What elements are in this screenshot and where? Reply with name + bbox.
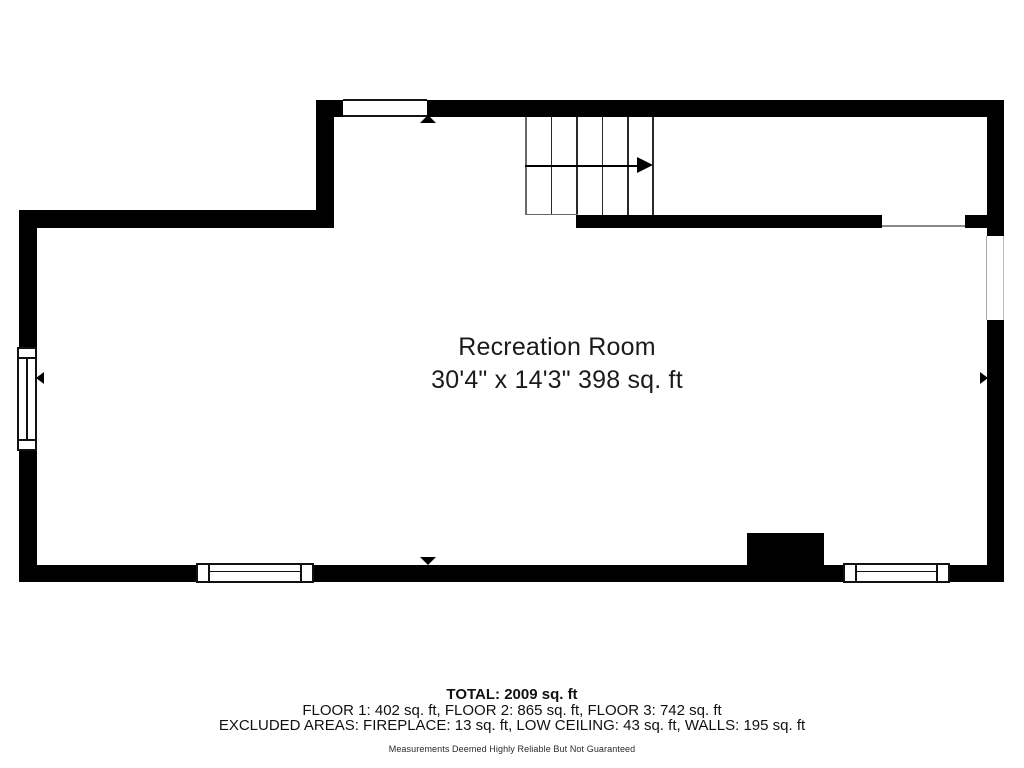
stair-direction-arrow bbox=[525, 165, 641, 167]
down-triangle-icon bbox=[420, 557, 436, 565]
fireplace bbox=[747, 533, 824, 566]
window-frame-line bbox=[936, 565, 938, 581]
wall-right-lower bbox=[987, 320, 1004, 582]
window-frame-line bbox=[855, 565, 857, 581]
excluded-areas: EXCLUDED AREAS: FIREPLACE: 13 sq. ft, LO… bbox=[0, 718, 1024, 734]
wall-left-upper bbox=[19, 210, 37, 348]
window-glass-line bbox=[210, 571, 300, 573]
window-left-wall bbox=[17, 347, 37, 451]
opening-top-wall bbox=[343, 99, 427, 117]
staircase bbox=[525, 117, 654, 215]
wall-below-stairs bbox=[576, 215, 882, 228]
opening-stair-landing bbox=[882, 225, 965, 227]
left-triangle-icon bbox=[36, 372, 44, 384]
room-name: Recreation Room bbox=[212, 331, 902, 364]
window-frame-line bbox=[300, 565, 302, 581]
right-arrow-icon bbox=[637, 157, 653, 173]
window-glass-line bbox=[26, 359, 28, 439]
stair-bottom-edge bbox=[525, 214, 578, 216]
room-label: Recreation Room 30'4" x 14'3" 398 sq. ft bbox=[212, 331, 902, 397]
wall-entry-vertical bbox=[316, 100, 334, 228]
wall-stub-right bbox=[965, 215, 987, 228]
window-glass-line bbox=[857, 571, 936, 573]
opening-right-wall bbox=[986, 236, 1004, 320]
up-triangle-icon bbox=[420, 115, 436, 123]
disclaimer: Measurements Deemed Highly Reliable But … bbox=[0, 742, 1024, 758]
floor-areas: FLOOR 1: 402 sq. ft, FLOOR 2: 865 sq. ft… bbox=[0, 703, 1024, 719]
window-frame-line bbox=[19, 439, 35, 441]
total-area: TOTAL: 2009 sq. ft bbox=[0, 687, 1024, 703]
area-summary: TOTAL: 2009 sq. ft FLOOR 1: 402 sq. ft, … bbox=[0, 687, 1024, 757]
wall-top-main bbox=[427, 100, 1004, 117]
window-bottom-left bbox=[196, 563, 314, 583]
floor-plan: Recreation Room 30'4" x 14'3" 398 sq. ft bbox=[0, 0, 1024, 768]
window-bottom-right bbox=[843, 563, 950, 583]
room-dimensions: 30'4" x 14'3" 398 sq. ft bbox=[212, 364, 902, 397]
window-frame-line bbox=[208, 565, 210, 581]
right-triangle-icon bbox=[980, 372, 988, 384]
wall-left-lower bbox=[19, 450, 37, 582]
wall-right-upper bbox=[987, 100, 1004, 236]
wall-mid-horizontal bbox=[19, 210, 334, 228]
